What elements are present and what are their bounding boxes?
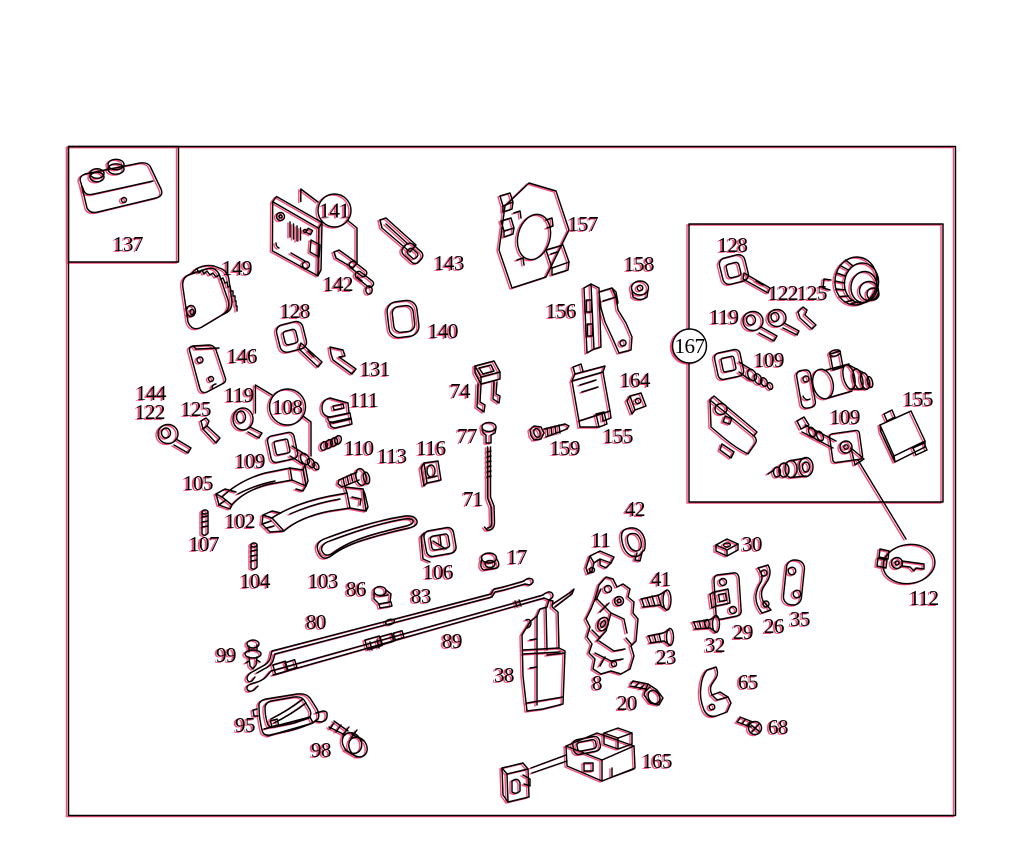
svg-text:35: 35: [790, 607, 810, 631]
svg-text:20: 20: [617, 691, 637, 715]
svg-text:106: 106: [423, 560, 453, 584]
svg-text:125: 125: [797, 281, 827, 305]
svg-text:141: 141: [320, 199, 350, 223]
svg-text:157: 157: [568, 212, 598, 236]
svg-text:95: 95: [235, 713, 255, 737]
svg-text:23: 23: [656, 645, 676, 669]
svg-text:26: 26: [764, 614, 784, 638]
svg-text:38: 38: [494, 663, 514, 687]
svg-text:8: 8: [592, 671, 602, 695]
svg-text:68: 68: [768, 715, 788, 739]
svg-text:109: 109: [754, 348, 784, 372]
svg-text:110: 110: [344, 436, 373, 460]
svg-text:155: 155: [903, 387, 933, 411]
svg-text:107: 107: [189, 532, 219, 556]
svg-text:74: 74: [450, 379, 471, 403]
svg-text:140: 140: [428, 319, 458, 343]
svg-text:122: 122: [135, 400, 165, 424]
svg-text:111: 111: [350, 388, 378, 412]
svg-text:17: 17: [507, 545, 527, 569]
svg-text:98: 98: [311, 738, 331, 762]
svg-text:142: 142: [323, 272, 353, 296]
svg-text:159: 159: [550, 436, 580, 460]
svg-text:104: 104: [240, 569, 271, 593]
svg-text:99: 99: [216, 643, 236, 667]
svg-text:103: 103: [308, 569, 338, 593]
svg-text:165: 165: [642, 749, 672, 773]
svg-text:164: 164: [620, 368, 651, 392]
svg-text:167: 167: [675, 334, 705, 358]
svg-text:113: 113: [377, 444, 406, 468]
svg-text:158: 158: [624, 252, 654, 276]
svg-text:89: 89: [442, 629, 462, 653]
svg-text:116: 116: [416, 436, 445, 460]
svg-text:149: 149: [222, 256, 252, 280]
svg-text:122: 122: [768, 281, 798, 305]
svg-text:109: 109: [235, 449, 265, 473]
svg-text:156: 156: [546, 299, 576, 323]
svg-text:137: 137: [113, 232, 143, 256]
svg-text:77: 77: [457, 424, 477, 448]
svg-text:71: 71: [463, 487, 483, 511]
svg-text:128: 128: [718, 233, 748, 257]
svg-text:105: 105: [183, 471, 213, 495]
svg-text:109: 109: [830, 405, 860, 429]
svg-text:86: 86: [346, 577, 366, 601]
svg-text:119: 119: [224, 383, 253, 407]
svg-text:42: 42: [625, 497, 645, 521]
svg-text:83: 83: [411, 584, 431, 608]
svg-text:32: 32: [705, 633, 725, 657]
svg-text:143: 143: [434, 251, 464, 275]
svg-text:112: 112: [909, 586, 938, 610]
svg-text:30: 30: [742, 532, 762, 556]
svg-text:41: 41: [651, 567, 671, 591]
svg-text:80: 80: [306, 610, 326, 634]
svg-text:125: 125: [181, 397, 211, 421]
svg-text:128: 128: [280, 299, 310, 323]
svg-text:102: 102: [225, 509, 255, 533]
svg-text:131: 131: [360, 357, 390, 381]
svg-text:11: 11: [591, 528, 610, 552]
svg-text:146: 146: [227, 344, 257, 368]
svg-text:65: 65: [738, 670, 758, 694]
svg-text:119: 119: [709, 305, 738, 329]
svg-text:155: 155: [603, 424, 633, 448]
svg-text:108: 108: [273, 395, 303, 419]
svg-text:29: 29: [733, 620, 753, 644]
